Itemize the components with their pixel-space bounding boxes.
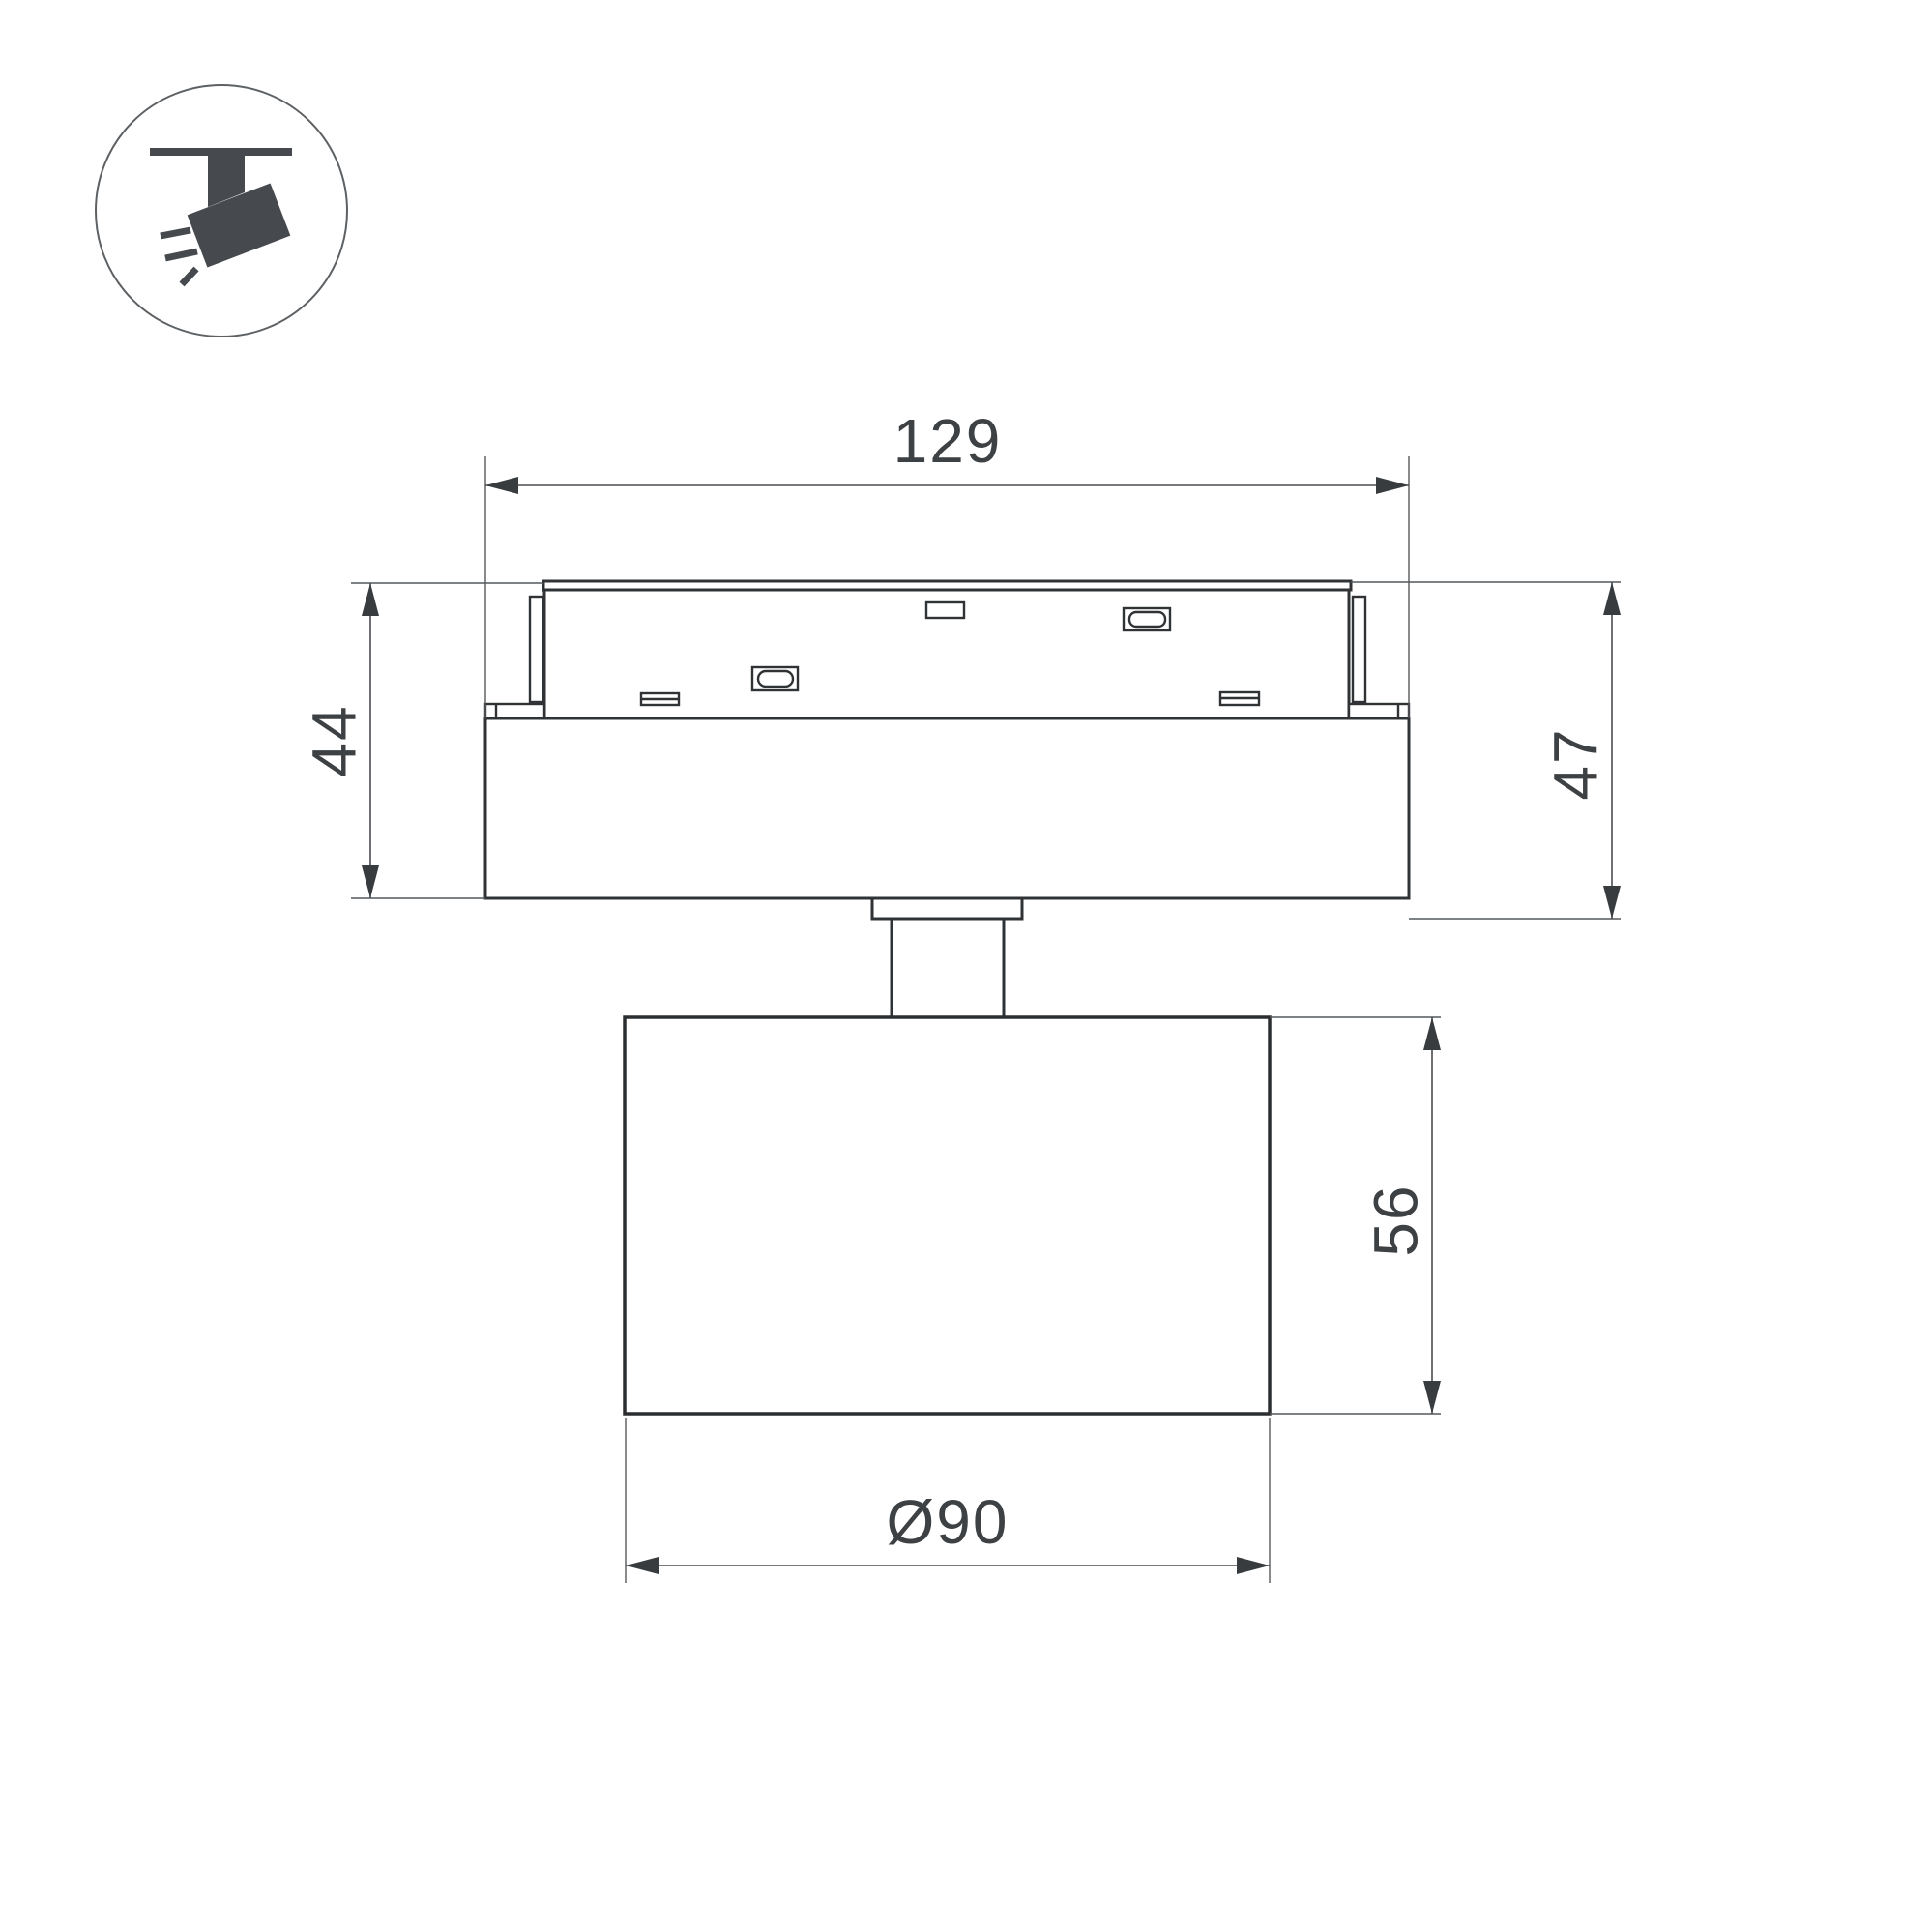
dimension-label-height-right: 47 (1540, 727, 1610, 800)
small-rect-slot (926, 602, 964, 618)
right-side-clip (1353, 597, 1365, 702)
pivot-collar (872, 898, 1022, 919)
dimension-label-width: 129 (893, 406, 1003, 476)
mounting-base (485, 718, 1409, 898)
dimension-head-diameter: Ø90 (626, 1418, 1270, 1583)
dimension-label-diameter: Ø90 (887, 1487, 1010, 1557)
left-flange (485, 704, 544, 718)
dimension-label-head-height: 56 (1361, 1184, 1430, 1256)
arrowhead-left (626, 1557, 659, 1574)
pivot-stem (892, 919, 1004, 1017)
arrowhead-left (485, 477, 518, 494)
technical-drawing-canvas: 129 44 47 56 Ø90 (0, 0, 1932, 1932)
arrowhead-bottom (362, 865, 379, 898)
arrowhead-top (1603, 582, 1621, 615)
arrowhead-right (1376, 477, 1409, 494)
arrowhead-top (1423, 1017, 1441, 1050)
fixture-body (485, 581, 1409, 1414)
lamp-head-cylinder (625, 1017, 1270, 1414)
arrowhead-right (1237, 1557, 1270, 1574)
arrowhead-top (362, 583, 379, 616)
right-flange (1349, 704, 1409, 718)
dimension-label-height-left: 44 (299, 704, 368, 776)
arrowhead-bottom (1603, 886, 1621, 919)
arrowhead-bottom (1423, 1381, 1441, 1414)
technical-drawing-page: 129 44 47 56 Ø90 (0, 0, 1932, 1932)
left-side-clip (530, 597, 543, 702)
dimension-head-height: 56 (1270, 1017, 1441, 1414)
track-spotlight-icon (96, 85, 347, 337)
